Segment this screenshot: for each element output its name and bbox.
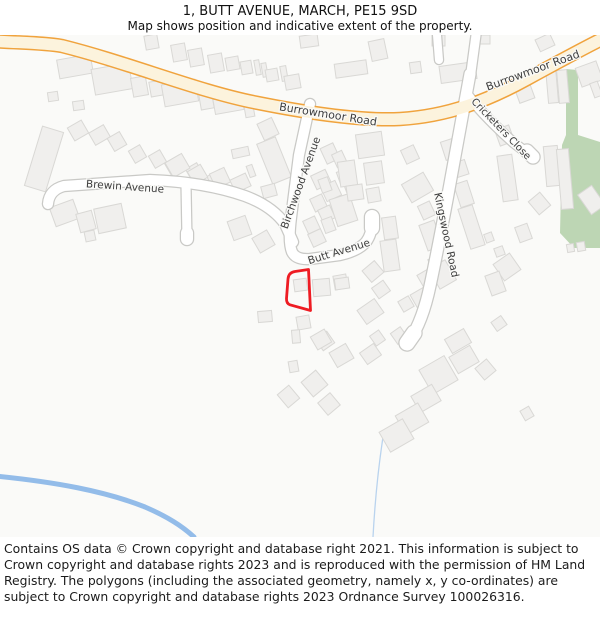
building xyxy=(208,53,225,73)
building xyxy=(296,315,311,330)
building xyxy=(284,74,301,90)
building xyxy=(240,60,253,75)
road-cul-de-sac-head xyxy=(407,333,414,343)
building xyxy=(368,39,388,62)
building xyxy=(299,35,318,48)
building xyxy=(566,243,574,252)
map-canvas: Burrowmoor RoadBurrowmoor RoadBrewin Ave… xyxy=(0,35,600,537)
building xyxy=(291,330,300,344)
building xyxy=(188,48,205,67)
building xyxy=(382,216,399,240)
building xyxy=(94,203,127,233)
building xyxy=(265,68,279,82)
building xyxy=(366,187,381,203)
building xyxy=(72,100,84,110)
building xyxy=(258,310,273,322)
building xyxy=(144,35,159,50)
building xyxy=(576,241,585,251)
road-minor-stub xyxy=(471,35,476,72)
road-minor-stub xyxy=(437,35,439,60)
building xyxy=(312,278,330,296)
building xyxy=(171,43,188,62)
building xyxy=(130,76,148,97)
building xyxy=(293,278,308,292)
building xyxy=(337,160,357,187)
building xyxy=(225,56,240,71)
building xyxy=(47,91,58,101)
building xyxy=(409,61,421,73)
building xyxy=(288,360,299,372)
building xyxy=(355,131,384,158)
copyright-text: Contains OS data © Crown copyright and d… xyxy=(0,537,600,605)
building xyxy=(364,161,385,185)
building xyxy=(346,184,364,201)
building xyxy=(334,277,349,290)
building xyxy=(84,230,96,242)
page-title: 1, BUTT AVENUE, MARCH, PE15 9SD xyxy=(0,0,600,19)
page-subtitle: Map shows position and indicative extent… xyxy=(0,19,600,33)
map-header: 1, BUTT AVENUE, MARCH, PE15 9SD Map show… xyxy=(0,0,600,35)
